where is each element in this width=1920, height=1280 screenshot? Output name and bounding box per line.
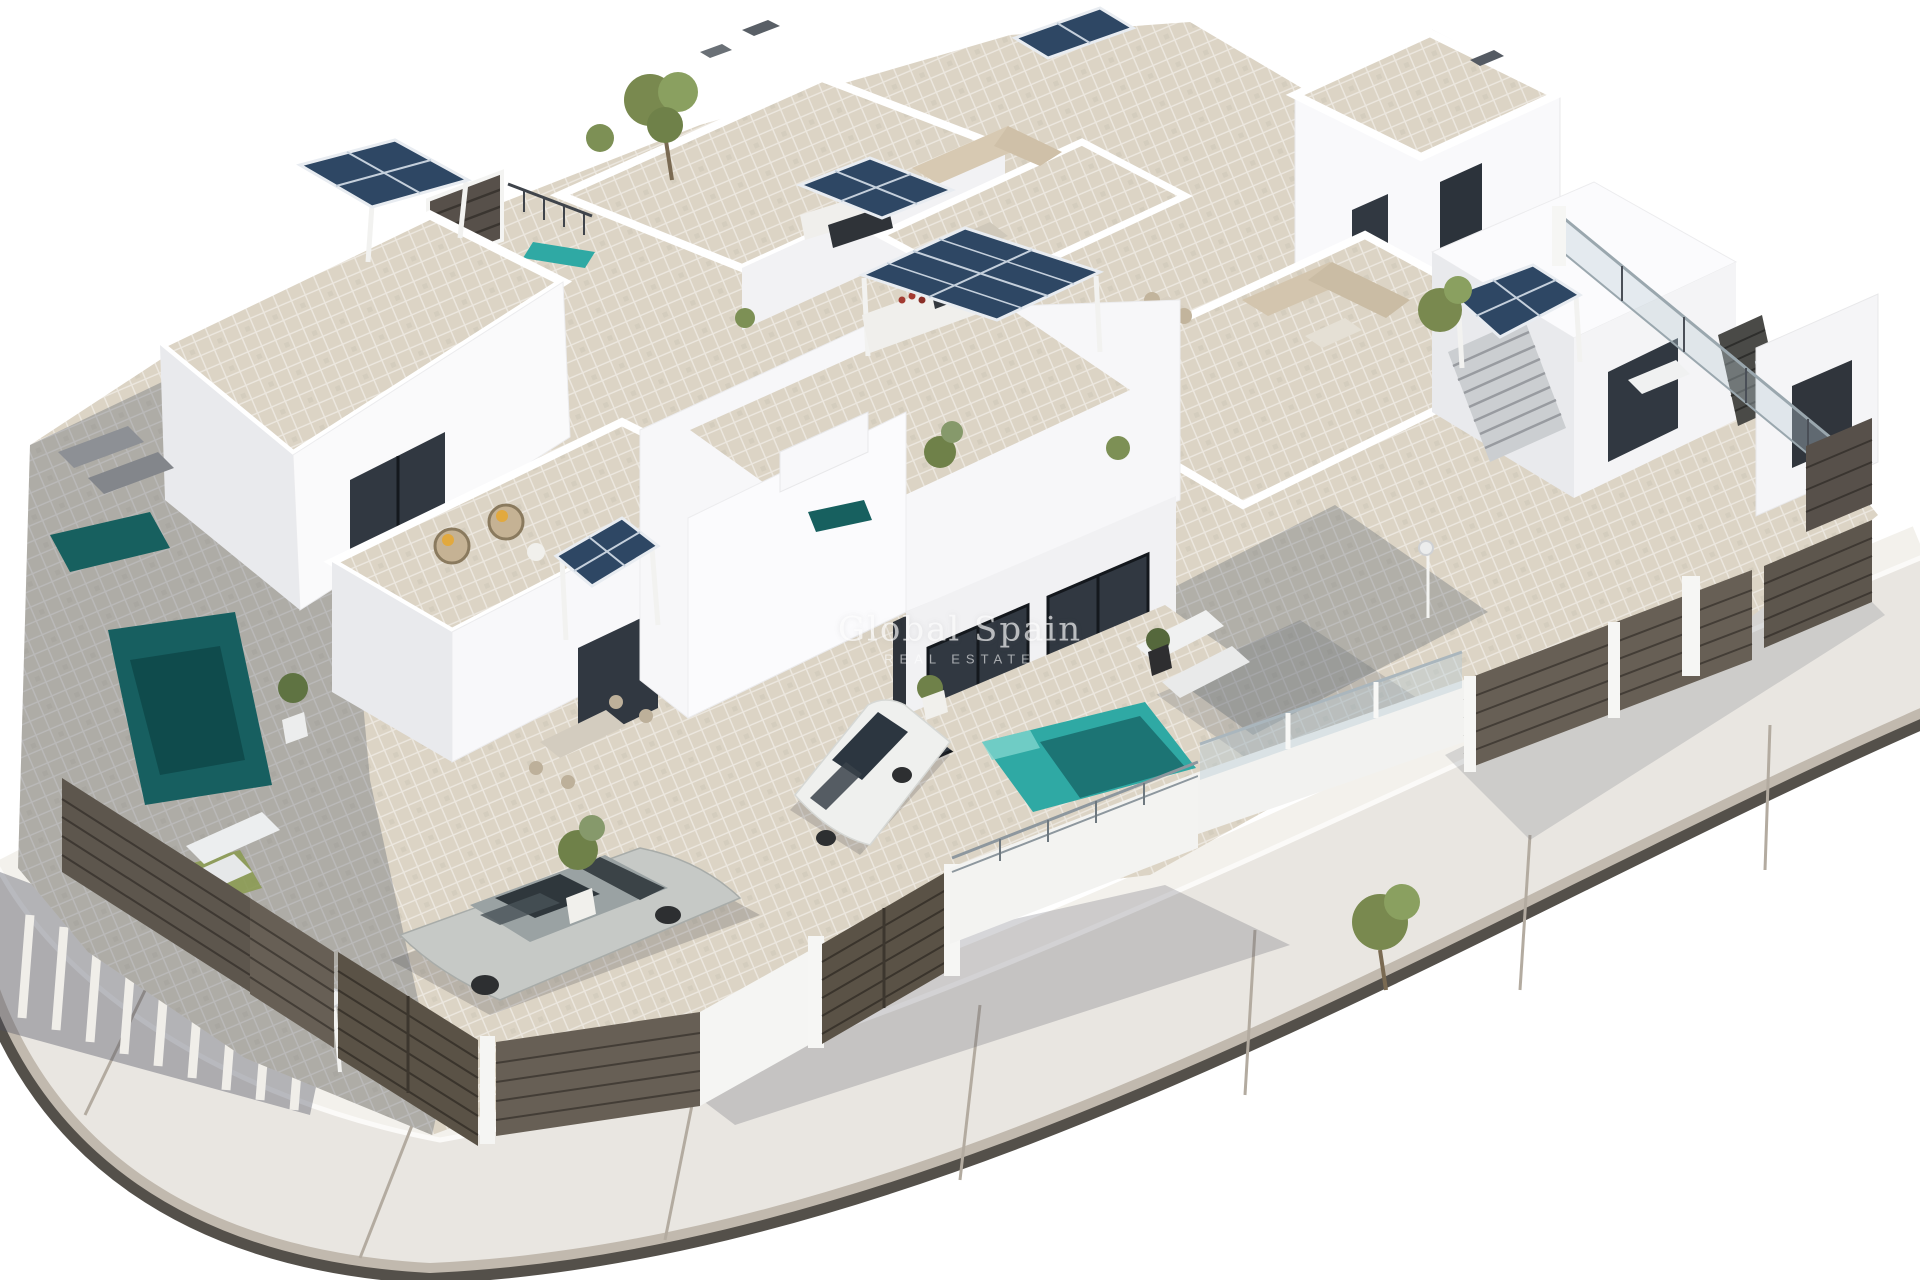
car-wheel: [816, 830, 836, 846]
shrub: [941, 421, 963, 443]
bbq-accessory: [919, 297, 926, 304]
render-canvas: Global Spain REAL ESTATE: [0, 0, 1920, 1280]
chair-cushion: [442, 534, 454, 546]
dining-chair: [609, 695, 623, 709]
rooftop-vent: [700, 44, 732, 58]
fence-post: [480, 1036, 495, 1144]
fence-post: [808, 936, 824, 1048]
scene: [0, 0, 1920, 1280]
fence-post: [1552, 206, 1566, 266]
fence-post: [1608, 622, 1620, 718]
tree-foliage: [647, 107, 683, 143]
car-wheel: [471, 975, 499, 995]
car-wheel: [892, 767, 912, 783]
bbq-accessory: [899, 297, 906, 304]
shrub: [1444, 276, 1472, 304]
shrub: [1106, 436, 1130, 460]
shrub: [735, 308, 755, 328]
dining-chair: [561, 775, 575, 789]
side-table: [527, 543, 545, 561]
tree-foliage: [1384, 884, 1420, 920]
fence-post: [1464, 676, 1476, 772]
rooftop-vent: [742, 20, 780, 36]
shrub: [586, 124, 614, 152]
shrub: [579, 815, 605, 841]
wicker-chair: [435, 529, 469, 563]
dining-chair: [639, 709, 653, 723]
fence-post: [1682, 576, 1700, 676]
wicker-chair: [489, 505, 523, 539]
car-wheel: [655, 906, 681, 924]
chair-cushion: [496, 510, 508, 522]
shrub: [278, 673, 308, 703]
outdoor-shower-head: [1419, 541, 1433, 555]
tree-foliage: [658, 72, 698, 112]
dining-chair: [529, 761, 543, 775]
